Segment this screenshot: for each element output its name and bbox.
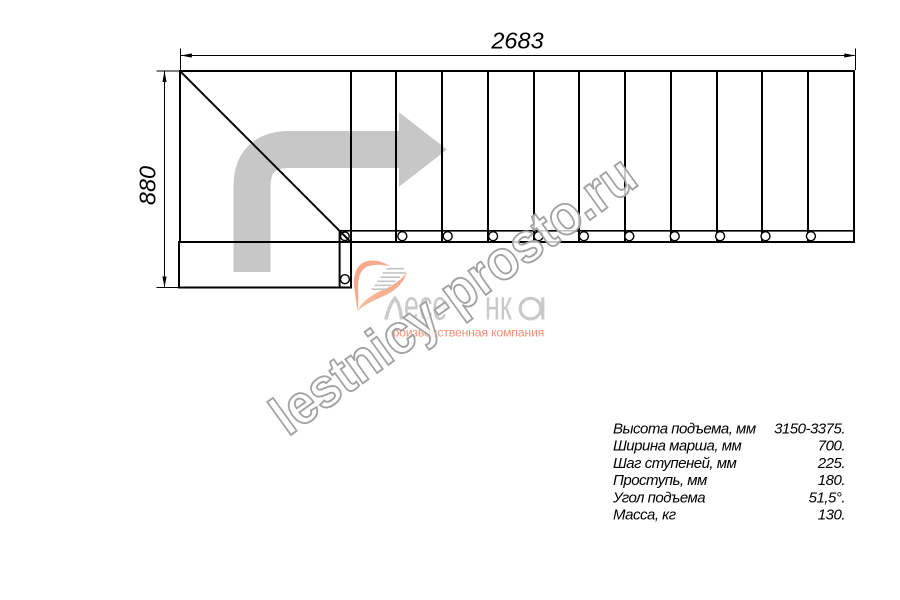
- svg-text:Ширина марша, мм: Ширина марша, мм: [613, 438, 741, 455]
- svg-text:Высота подъема, мм: Высота подъема, мм: [613, 421, 756, 438]
- svg-text:Проступь, мм: Проступь, мм: [613, 472, 707, 489]
- svg-text:225.: 225.: [817, 455, 845, 472]
- svg-text:130.: 130.: [818, 507, 845, 524]
- svg-text:Шаг ступеней, мм: Шаг ступеней, мм: [613, 455, 737, 472]
- svg-text:180.: 180.: [818, 472, 845, 489]
- svg-text:2683: 2683: [490, 28, 543, 54]
- svg-text:Угол подъема: Угол подъема: [612, 489, 705, 506]
- svg-text:3150-3375.: 3150-3375.: [774, 421, 845, 438]
- svg-text:51,5°.: 51,5°.: [809, 489, 845, 506]
- svg-text:Масса, кг: Масса, кг: [613, 507, 677, 524]
- svg-text:lestnicy-prosto.ru: lestnicy-prosto.ru: [258, 142, 647, 446]
- svg-text:880: 880: [135, 166, 161, 205]
- svg-text:700.: 700.: [818, 438, 845, 455]
